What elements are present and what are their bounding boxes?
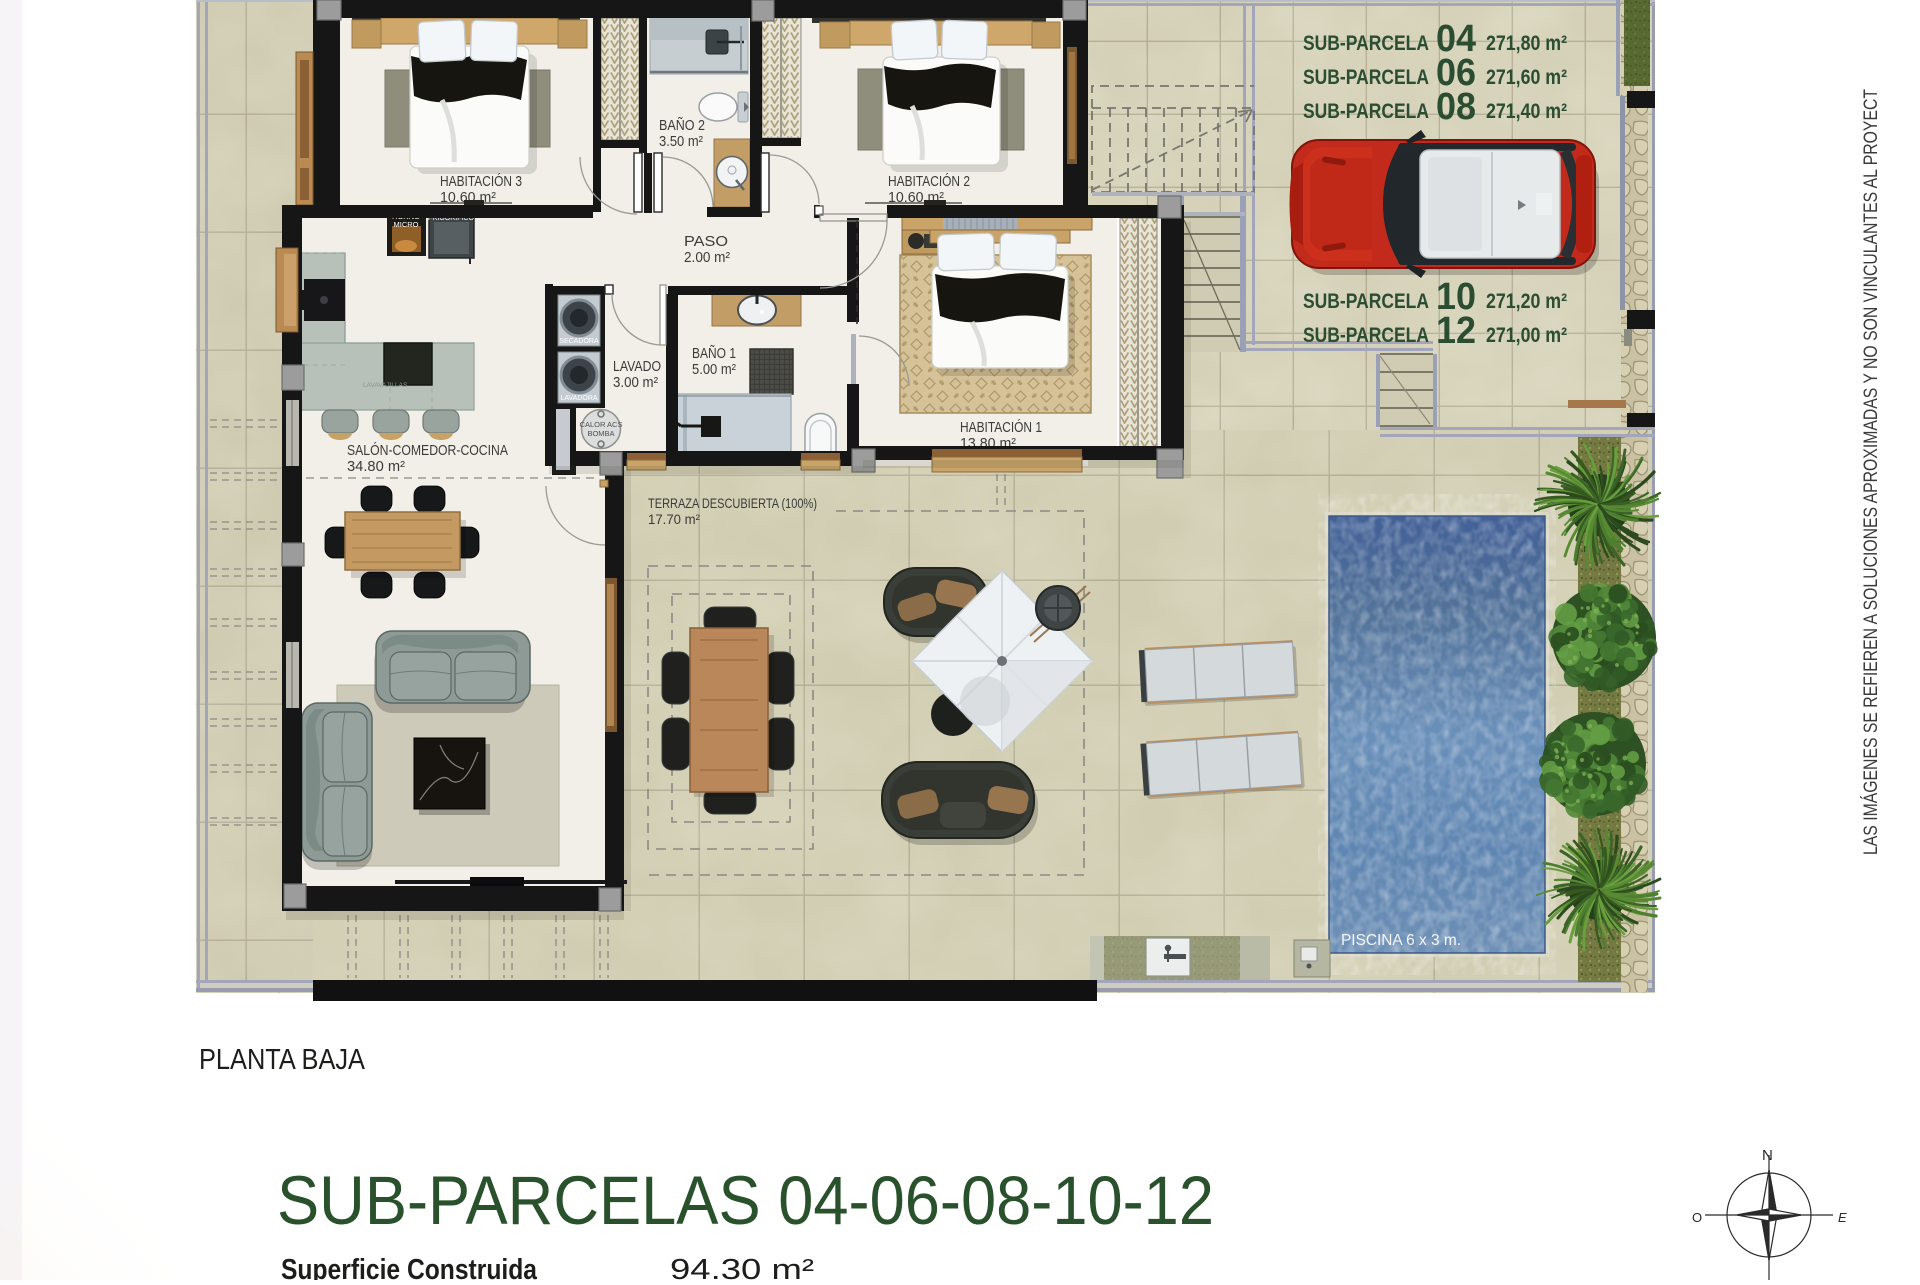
svg-text:LAVAVAJILLAS: LAVAVAJILLAS [363, 382, 408, 389]
svg-text:BOMBA: BOMBA [587, 429, 614, 438]
svg-text:PLANTA BAJA: PLANTA BAJA [199, 1044, 366, 1076]
svg-text:O: O [1692, 1210, 1702, 1225]
svg-text:5.00 m²: 5.00 m² [692, 362, 736, 378]
svg-text:271,40 m²: 271,40 m² [1486, 100, 1567, 123]
svg-text:34.80 m²: 34.80 m² [347, 459, 405, 475]
svg-text:N: N [1762, 1147, 1773, 1164]
svg-text:BAÑO 1: BAÑO 1 [692, 345, 736, 362]
svg-text:271,60 m²: 271,60 m² [1486, 66, 1567, 89]
svg-text:SUB-PARCELA: SUB-PARCELA [1303, 66, 1429, 89]
svg-text:CALOR ACS: CALOR ACS [580, 420, 623, 429]
svg-text:3.50 m²: 3.50 m² [659, 134, 703, 150]
svg-text:SALÓN-COMEDOR-COCINA: SALÓN-COMEDOR-COCINA [347, 442, 508, 459]
svg-text:MICRO: MICRO [394, 220, 419, 229]
svg-text:HABITACIÓN 2: HABITACIÓN 2 [888, 173, 970, 190]
svg-text:LAS IMÁGENES SE REFIEREN A SOL: LAS IMÁGENES SE REFIEREN A SOLUCIONES AP… [1861, 89, 1882, 855]
svg-text:SUB-PARCELA: SUB-PARCELA [1303, 324, 1429, 347]
svg-text:E: E [1838, 1210, 1847, 1225]
svg-text:LAVADORA: LAVADORA [560, 395, 597, 402]
svg-text:SUB-PARCELA: SUB-PARCELA [1303, 100, 1429, 123]
svg-text:271,20 m²: 271,20 m² [1486, 290, 1567, 313]
svg-text:2.00 m²: 2.00 m² [684, 250, 730, 266]
svg-text:271,80 m²: 271,80 m² [1486, 32, 1567, 55]
svg-text:HABITACIÓN 1: HABITACIÓN 1 [960, 419, 1042, 436]
svg-text:08: 08 [1436, 86, 1476, 128]
svg-text:LAVADO: LAVADO [613, 359, 661, 375]
svg-text:SECADORA: SECADORA [559, 338, 599, 345]
svg-text:PISCINA 6 x 3 m.: PISCINA 6 x 3 m. [1341, 932, 1461, 949]
svg-text:3.00 m²: 3.00 m² [613, 375, 658, 391]
svg-text:SUB-PARCELA: SUB-PARCELA [1303, 32, 1429, 55]
svg-text:12: 12 [1436, 310, 1476, 352]
svg-text:BAÑO 2: BAÑO 2 [659, 117, 705, 134]
svg-text:TERRAZA DESCUBIERTA (100%): TERRAZA DESCUBIERTA (100%) [648, 495, 817, 511]
svg-text:17.70 m²: 17.70 m² [648, 511, 700, 527]
svg-text:94.30 m²: 94.30 m² [670, 1254, 814, 1280]
svg-text:HABITACIÓN 3: HABITACIÓN 3 [440, 173, 522, 190]
svg-text:Superficie Construida: Superficie Construida [281, 1254, 538, 1280]
svg-text:SUB-PARCELA: SUB-PARCELA [1303, 290, 1429, 313]
svg-text:PASO: PASO [684, 234, 728, 250]
svg-text:271,00 m²: 271,00 m² [1486, 324, 1567, 347]
svg-text:SUB-PARCELAS 04-06-08-10-12: SUB-PARCELAS 04-06-08-10-12 [277, 1162, 1214, 1239]
